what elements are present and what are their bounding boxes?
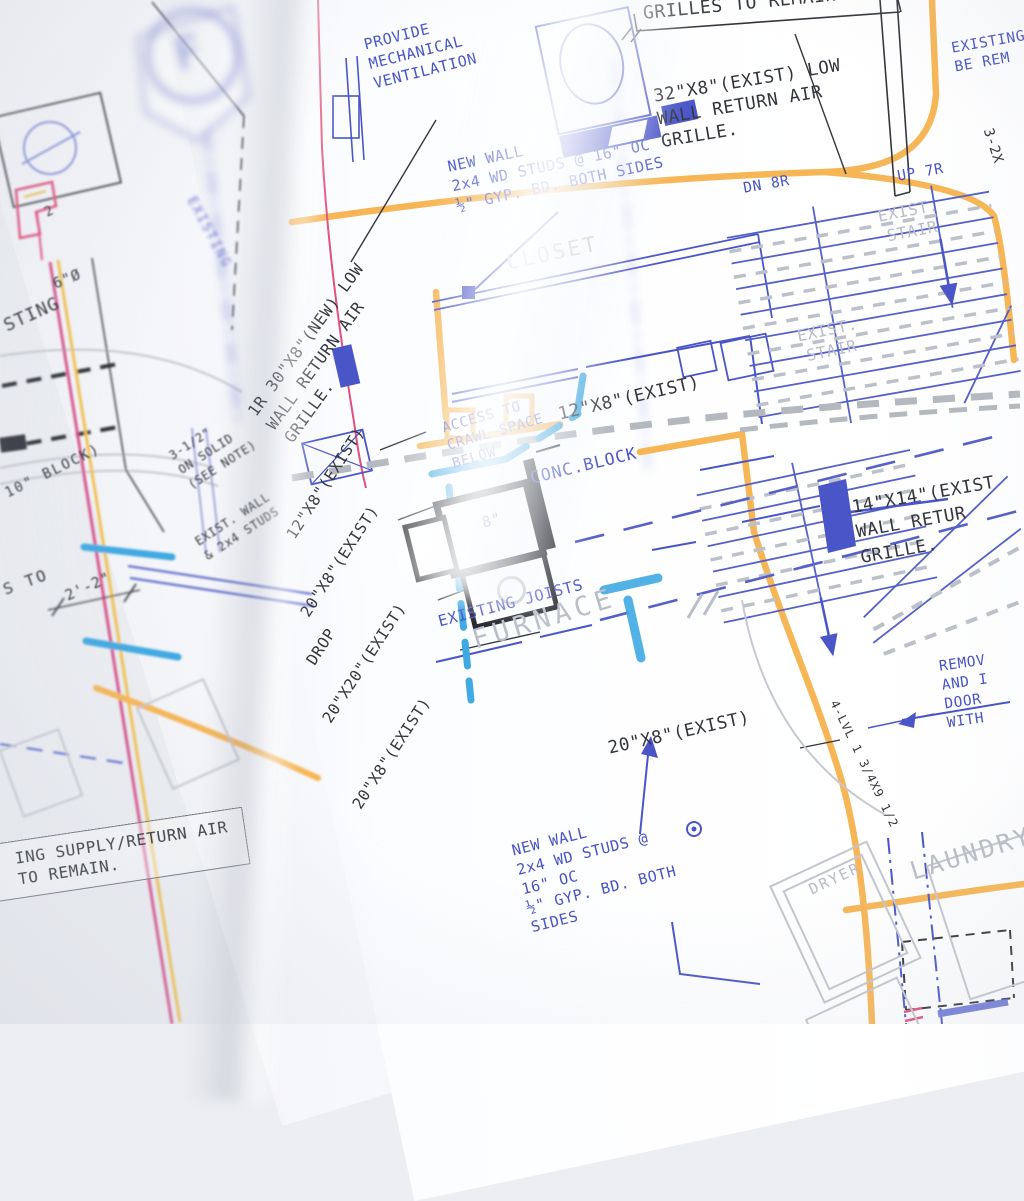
leader-arrow: [898, 712, 916, 728]
stair-down-arrow: [820, 633, 842, 658]
gray-dashed-wall: [292, 394, 1020, 478]
photo-of-blueprint-book: { "palette": { "paper": "#fbfcfe", "ink_…: [0, 0, 1024, 1024]
door-jamb: [462, 286, 475, 299]
break-marks: [688, 591, 718, 618]
